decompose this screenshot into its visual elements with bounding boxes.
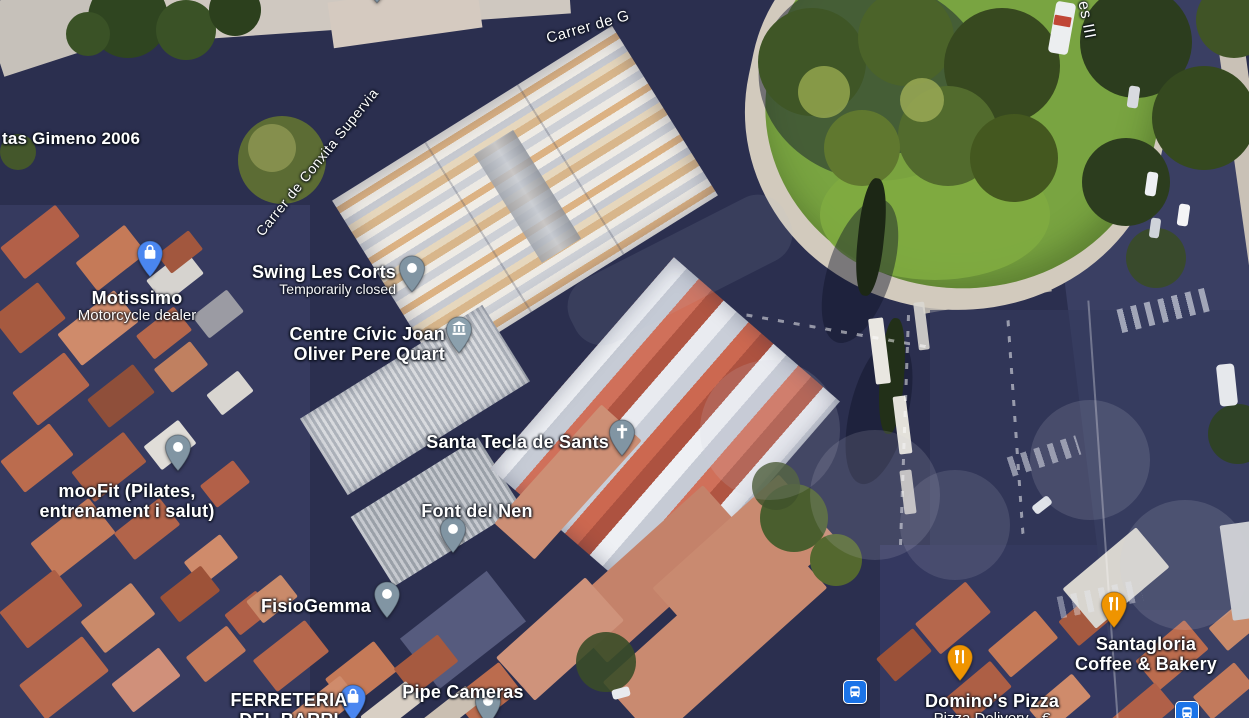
museum-pin-icon <box>446 316 473 354</box>
generic-pin-icon <box>165 434 192 472</box>
restaurant-pin-icon <box>1101 591 1128 629</box>
label-line: FisioGemma <box>261 596 371 616</box>
label-line: FERRETERIA <box>230 690 347 710</box>
map-canvas[interactable]: tas Gimeno 2006 MotissimoMotorcycle deal… <box>0 0 1249 718</box>
label-line: Pipe Cameras <box>402 682 523 702</box>
tree <box>66 12 110 56</box>
church-pin-icon <box>609 419 636 457</box>
tree <box>900 78 944 122</box>
label-subline: Temporarily closed <box>252 282 396 298</box>
bus-icon <box>848 685 862 699</box>
label-line: Oliver Pere Quart <box>290 344 445 364</box>
watermark-blob <box>900 470 1010 580</box>
tree <box>576 632 636 692</box>
tree <box>1152 66 1249 170</box>
place-label-pipe-cameras[interactable]: Pipe Cameras <box>402 682 523 702</box>
place-pin-dominos[interactable] <box>947 644 974 687</box>
edge-pin-top[interactable] <box>364 0 391 9</box>
label-line: Font del Nen <box>421 501 532 521</box>
label-line: Santa Tecla de Sants <box>426 432 609 452</box>
bus-stop-1[interactable] <box>843 680 867 704</box>
place-pin-fisiogemma[interactable] <box>374 581 401 624</box>
tree <box>156 0 216 60</box>
label-line: Santagloria <box>1075 634 1217 654</box>
restaurant-pin-icon <box>947 644 974 682</box>
place-pin-santa-tecla[interactable] <box>609 419 636 462</box>
label-line: mooFit (Pilates, <box>39 481 214 501</box>
label-line: Coffee & Bakery <box>1075 654 1217 674</box>
label-line: Centre Cívic Joan <box>290 324 445 344</box>
place-label-santagloria[interactable]: SantagloriaCoffee & Bakery <box>1075 634 1217 674</box>
generic-pin-icon <box>374 581 401 619</box>
bus-icon <box>1180 706 1194 718</box>
place-label-santa-tecla[interactable]: Santa Tecla de Sants <box>426 432 609 452</box>
place-label-fisiogemma[interactable]: FisioGemma <box>261 596 371 616</box>
watermark-blob <box>1120 500 1249 630</box>
generic-pin-icon <box>364 0 391 4</box>
place-label-swing-les-corts[interactable]: Swing Les CortsTemporarily closed <box>252 262 396 298</box>
tree <box>970 114 1058 202</box>
place-label-gimeno[interactable]: tas Gimeno 2006 <box>2 129 140 148</box>
watermark-blob <box>1030 400 1150 520</box>
place-pin-swing-les-corts[interactable] <box>399 255 426 298</box>
place-label-motissimo[interactable]: MotissimoMotorcycle dealer <box>78 288 196 325</box>
generic-pin-icon <box>399 255 426 293</box>
tree <box>824 110 900 186</box>
label-line: Motissimo <box>78 288 196 308</box>
tree <box>798 66 850 118</box>
label-subline: Motorcycle dealer <box>78 308 196 325</box>
tree <box>248 124 296 172</box>
label-line: tas Gimeno 2006 <box>2 129 140 148</box>
place-label-moofit[interactable]: mooFit (Pilates,entrenament i salut) <box>39 481 214 521</box>
place-pin-motissimo[interactable] <box>137 240 164 283</box>
plaza <box>328 0 483 48</box>
place-label-centre-civic[interactable]: Centre Cívic JoanOliver Pere Quart <box>290 324 445 364</box>
place-label-ferreteria[interactable]: FERRETERIADEL BARRI <box>230 690 347 718</box>
place-pin-moofit[interactable] <box>165 434 192 477</box>
label-line: Domino's Pizza <box>925 691 1059 711</box>
place-label-font-del-nen[interactable]: Font del Nen <box>421 501 532 521</box>
label-line: entrenament i salut) <box>39 501 214 521</box>
shopping-pin-icon <box>137 240 164 278</box>
place-pin-santagloria[interactable] <box>1101 591 1128 634</box>
label-subline: Pizza Delivery · € <box>925 711 1059 718</box>
label-line: Swing Les Corts <box>252 262 396 282</box>
place-pin-font-del-nen[interactable] <box>440 516 467 559</box>
place-pin-centre-civic[interactable] <box>446 316 473 359</box>
label-line: DEL BARRI <box>230 710 347 718</box>
bus-stop-2[interactable] <box>1175 701 1199 718</box>
place-label-dominos[interactable]: Domino's PizzaPizza Delivery · € <box>925 691 1059 718</box>
generic-pin-icon <box>440 516 467 554</box>
